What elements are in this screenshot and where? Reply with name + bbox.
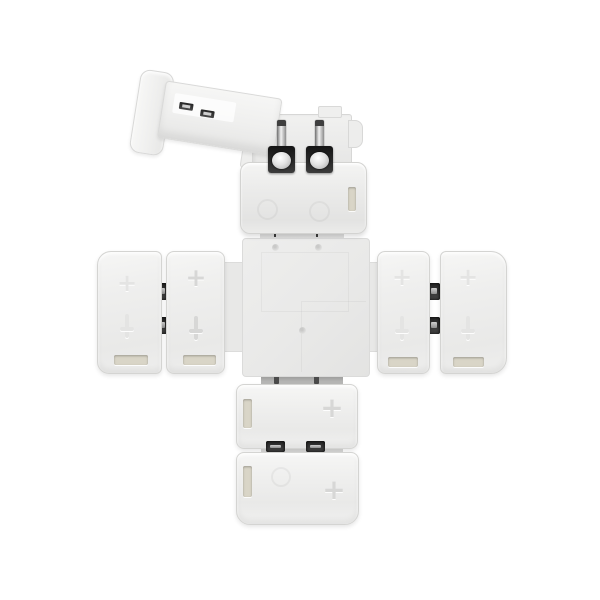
strip-slot (388, 357, 418, 367)
contact-pin-head (310, 152, 329, 169)
lid-plate (157, 80, 283, 156)
contact-pin-head (272, 152, 291, 169)
bottom-upper-clip: + (236, 384, 358, 449)
dimple (315, 244, 322, 251)
cross-center-plate (242, 238, 370, 377)
molding-seam (301, 301, 366, 372)
polarity-ring-emboss (271, 467, 291, 487)
top-clip-side-tab (348, 120, 363, 148)
strip-slot (243, 399, 252, 428)
minus-emboss-stem (194, 316, 198, 340)
strip-slot (243, 466, 252, 497)
plus-emboss: + (319, 475, 349, 505)
minus-emboss (120, 314, 134, 340)
minus-emboss-bar (189, 329, 203, 333)
solder-pin-mark (314, 376, 319, 384)
right-outer-clip: + (440, 251, 507, 374)
strip-contact (266, 441, 285, 452)
polarity-ring-emboss (309, 201, 330, 222)
strip-slot (114, 355, 148, 365)
minus-emboss-stem (400, 316, 404, 340)
product-photo-stage: + + + + + + (0, 0, 600, 600)
left-outer-clip: + (97, 251, 162, 374)
right-inner-clip: + (377, 251, 430, 374)
plus-emboss: + (317, 393, 347, 423)
minus-emboss-bar (395, 329, 409, 333)
plus-emboss: + (183, 264, 209, 290)
top-clip-notch (318, 106, 342, 118)
release-slot (348, 187, 356, 211)
polarity-ring-emboss (257, 199, 278, 220)
minus-emboss (395, 316, 409, 342)
minus-emboss (189, 316, 203, 342)
minus-emboss (461, 316, 475, 342)
top-clip-body (240, 162, 367, 234)
left-inner-clip: + (166, 251, 225, 374)
minus-emboss-bar (461, 329, 475, 333)
strip-contact (306, 441, 325, 452)
strip-slot (453, 357, 484, 367)
plus-emboss: + (114, 270, 140, 296)
minus-emboss-stem (466, 316, 470, 340)
strip-slot (183, 355, 216, 365)
bottom-lower-clip: + (236, 452, 359, 525)
plus-emboss: + (455, 264, 481, 290)
minus-emboss-stem (125, 314, 129, 338)
contact-pin-base (268, 146, 295, 173)
minus-emboss-bar (120, 327, 134, 331)
dimple (272, 244, 279, 251)
solder-pin-mark (274, 376, 279, 384)
dimple (299, 327, 306, 334)
contact-pin-base (306, 146, 333, 173)
plus-emboss: + (389, 264, 415, 290)
